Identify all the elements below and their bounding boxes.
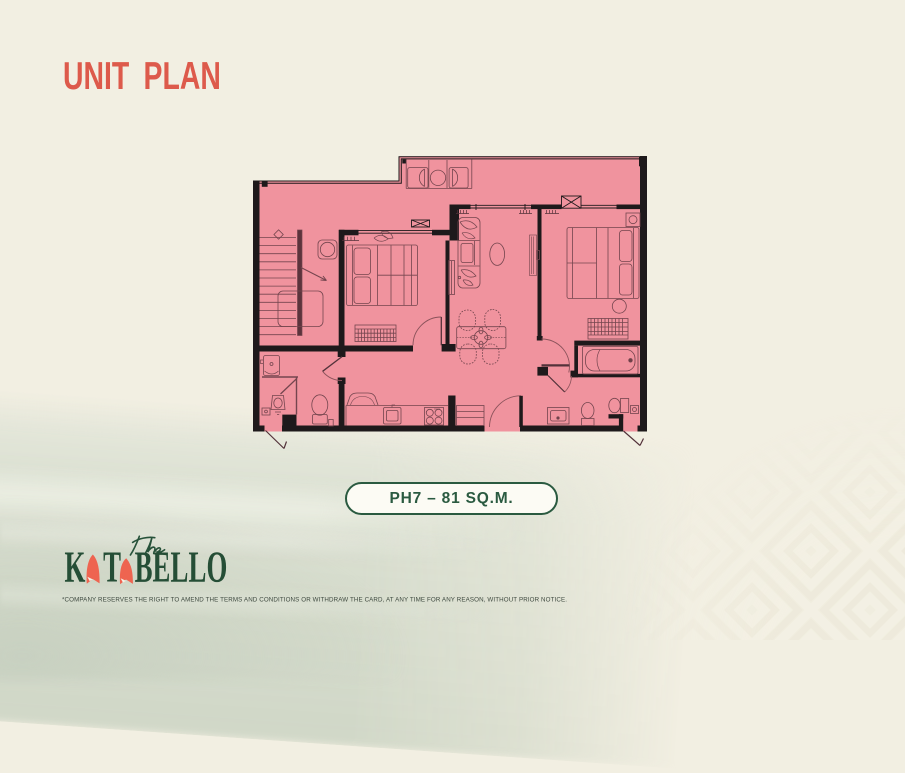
svg-text:T: T bbox=[103, 543, 121, 590]
svg-text:BELLO: BELLO bbox=[135, 543, 228, 590]
svg-text:K: K bbox=[64, 543, 85, 590]
